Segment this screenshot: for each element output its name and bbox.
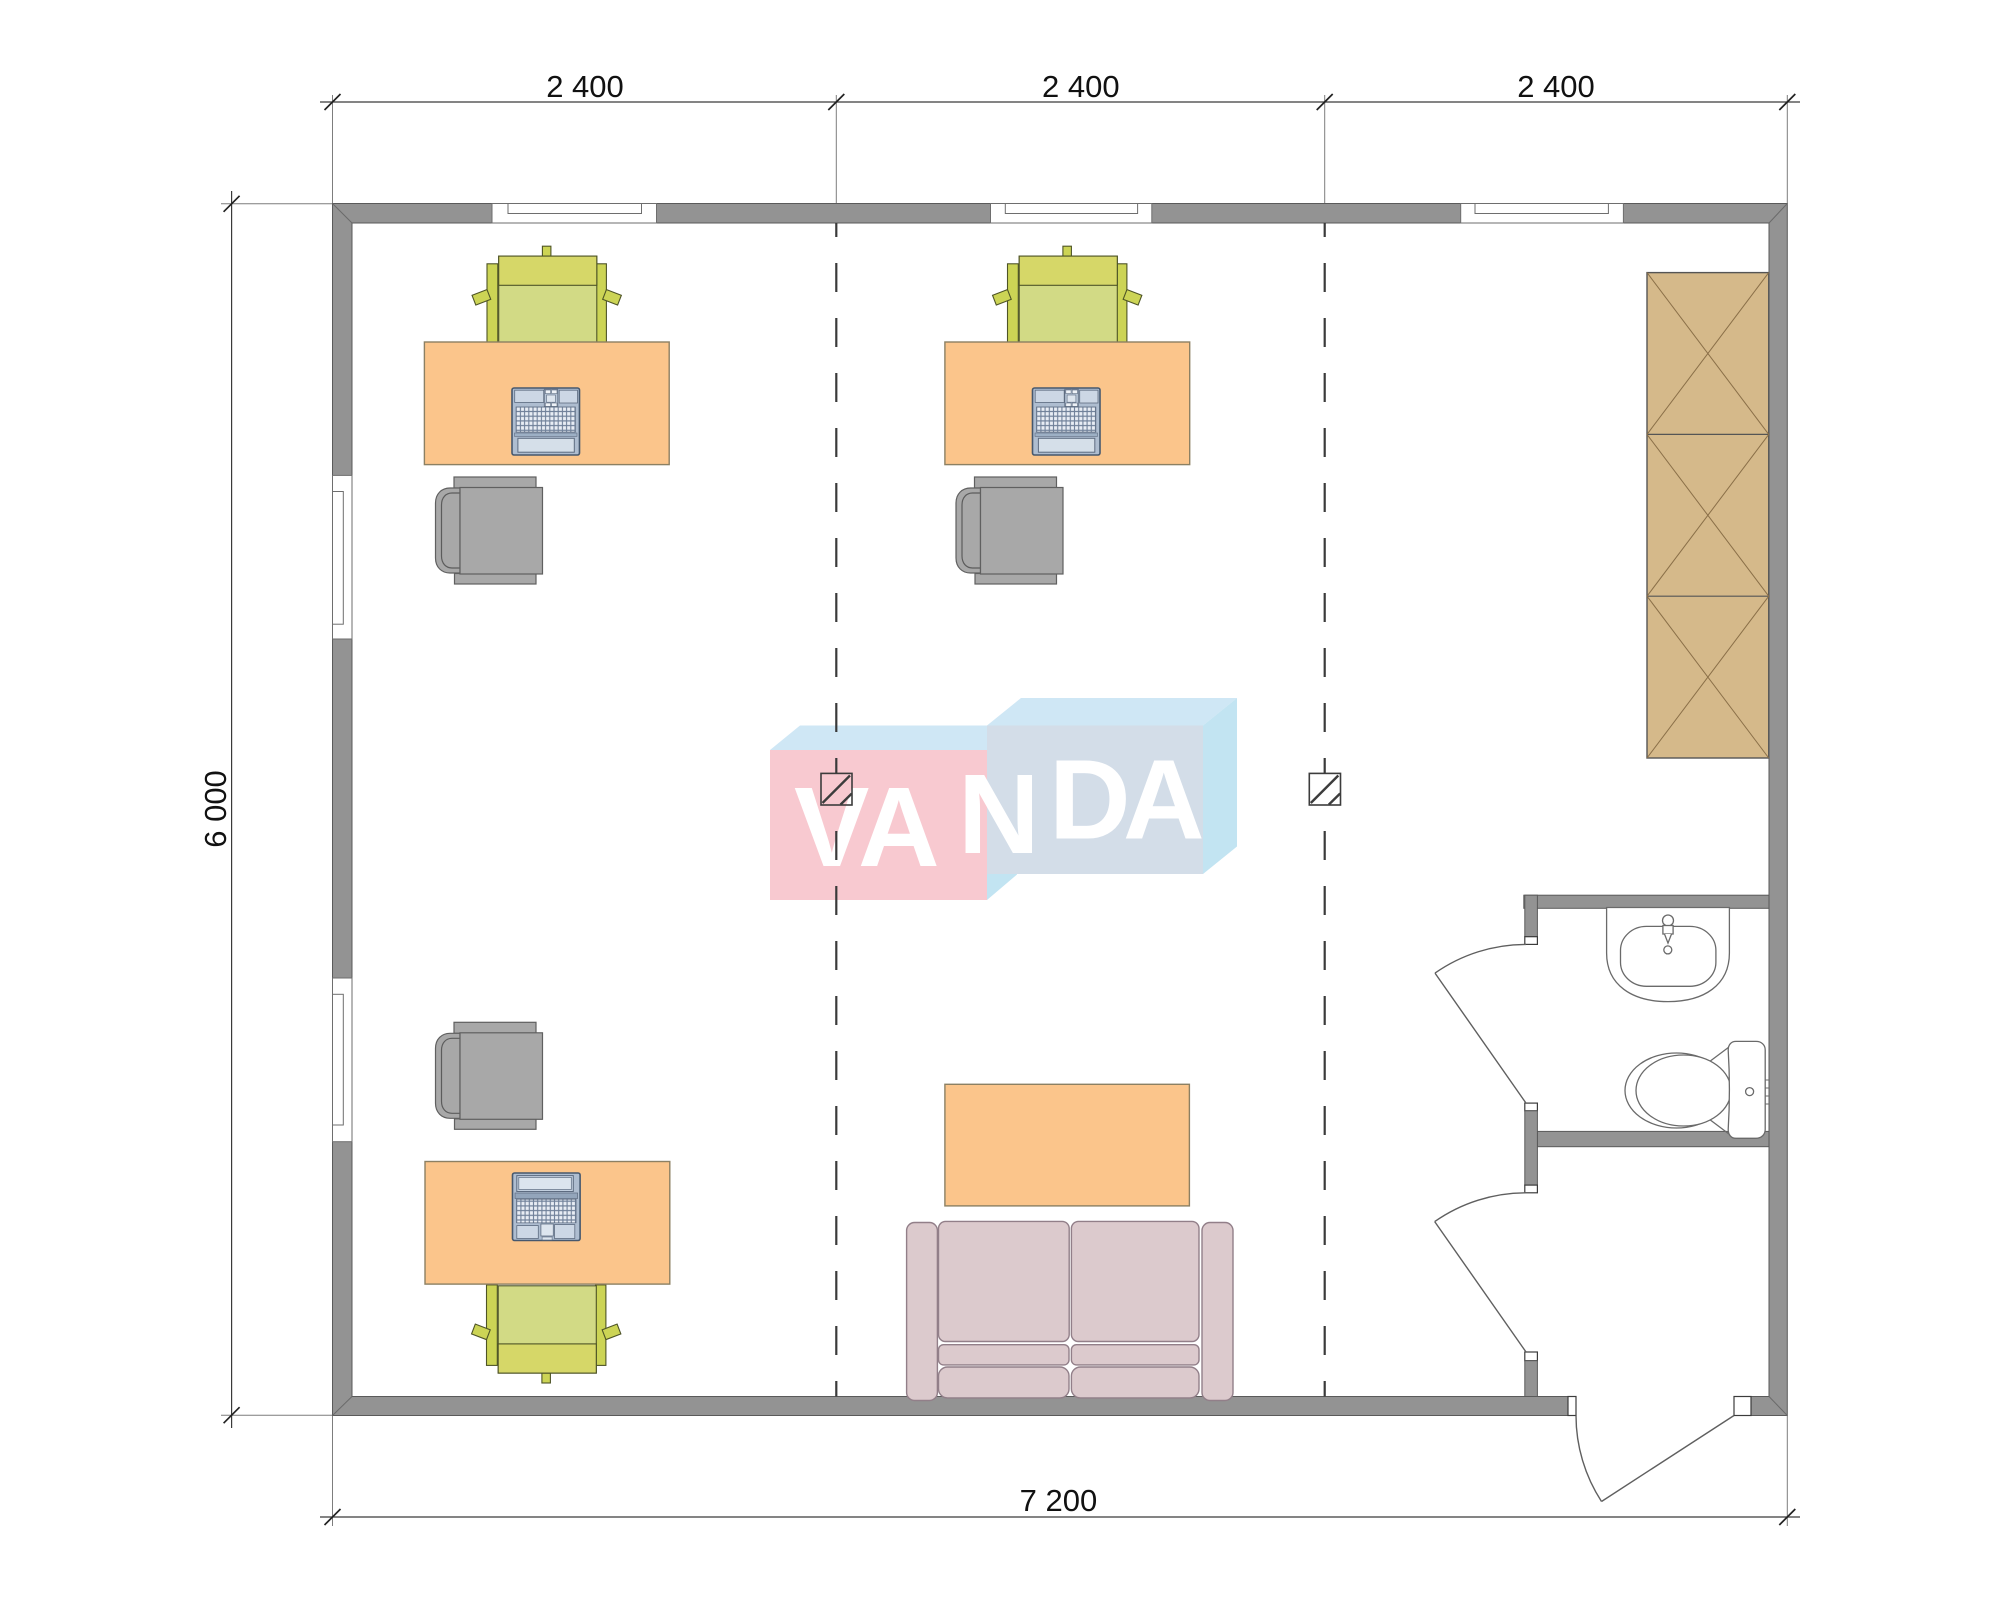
- svg-text:6 000: 6 000: [198, 770, 233, 848]
- svg-text:D: D: [1049, 737, 1131, 863]
- svg-text:2 400: 2 400: [1042, 69, 1120, 104]
- svg-text:A: A: [1123, 737, 1205, 863]
- svg-text:N: N: [958, 751, 1040, 877]
- svg-text:2 400: 2 400: [1517, 69, 1595, 104]
- svg-text:A: A: [858, 764, 940, 890]
- svg-text:2 400: 2 400: [546, 69, 624, 104]
- svg-text:7 200: 7 200: [1020, 1483, 1098, 1518]
